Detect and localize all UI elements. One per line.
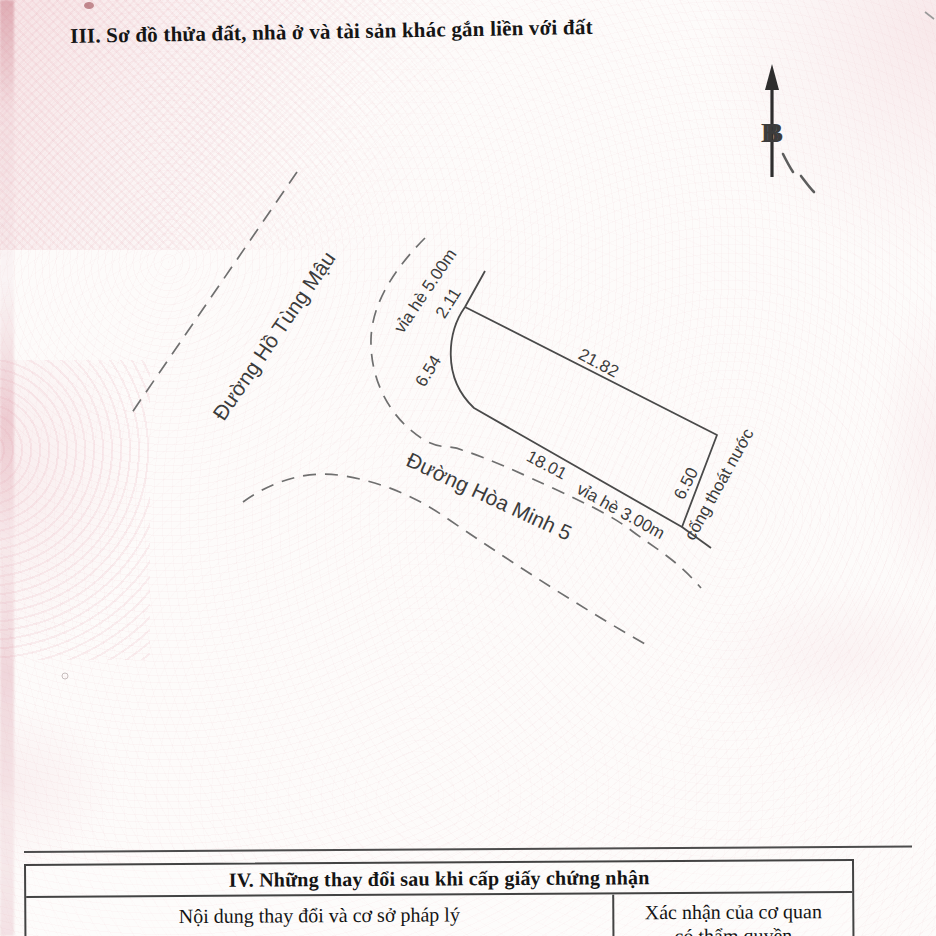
pen-mark [783,154,793,172]
section4-col-right-line1: Xác nhận của cơ quan [645,899,822,924]
north-arrow-head [765,64,779,90]
dim-arc: 6.54 [412,352,446,390]
section4-col-right-header: Xác nhận của cơ quan có thẩm quyền [614,893,852,936]
road1-far-edge-dashed-line [131,172,297,414]
pen-mark [801,176,814,192]
section4-title: IV. Những thay đổi sau khi cấp giấy chứn… [26,861,852,898]
dim-southeast: 6.50 [670,464,702,502]
parcel-diagram: B B Đường Hồ Tùng Mậu Đường Hòa Minh 5 v… [0,0,936,936]
section4-col-left-header: Nội dung thay đổi và cơ sở pháp lý [26,894,614,936]
scan-speck [62,673,68,679]
dim-southwest: 18.01 [523,447,569,484]
dim-northeast: 21.82 [575,345,621,382]
section4-col-right-line2: có thẩm quyền [675,923,793,936]
section4-header-row: Nội dung thay đổi và cơ sở pháp lý Xác n… [26,893,852,936]
north-label-doublestrike: B [765,118,783,148]
section4-table: IV. Những thay đổi sau khi cấp giấy chứn… [24,859,854,936]
scan-speck [925,12,934,19]
